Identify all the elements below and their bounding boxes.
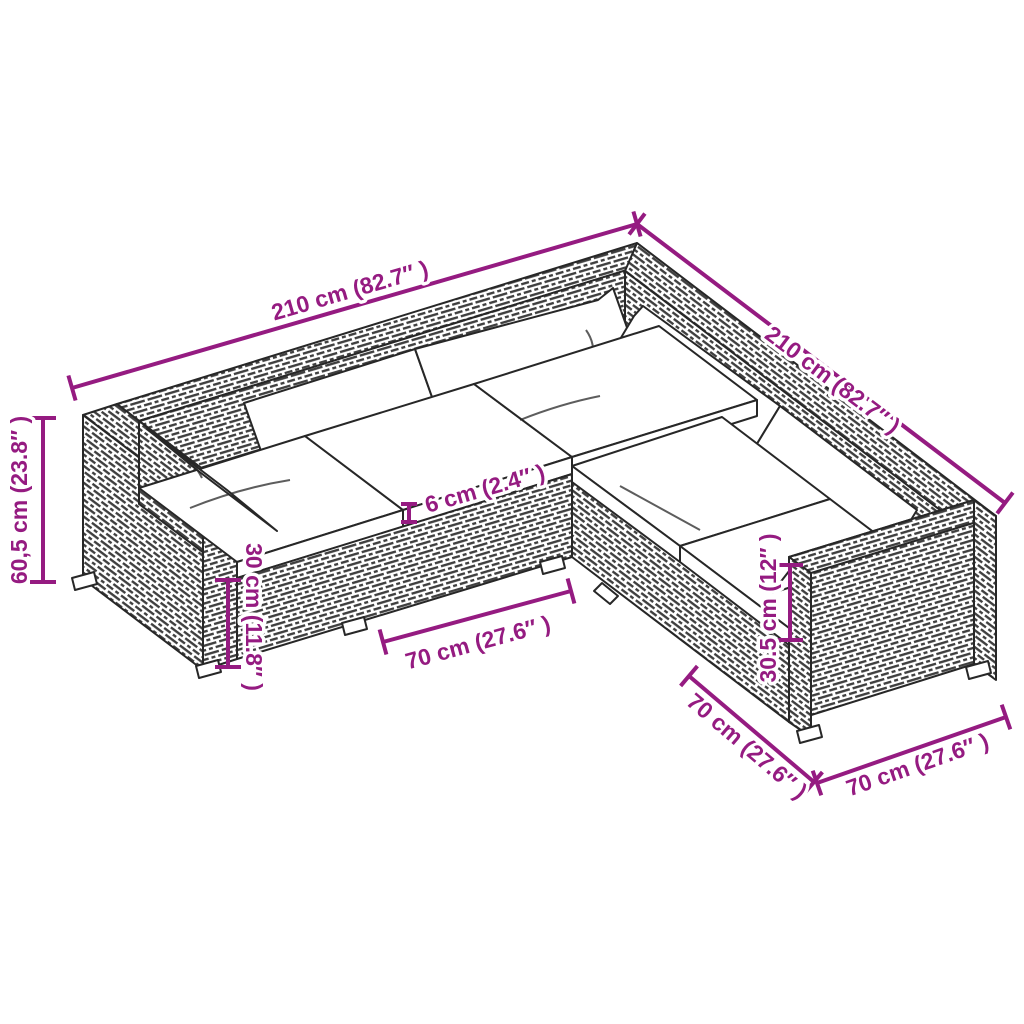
dimension-label: 30 cm (11.8″ ): [241, 543, 267, 691]
armrest-right-front-face: [789, 557, 811, 737]
sofa-illustration: [72, 243, 996, 743]
diagram-canvas: 210 cm (82.7″ ) 210 cm (82.7″ ) 60,5 cm …: [0, 0, 1024, 1024]
dimension-label: 70 cm (27.6″ ): [403, 610, 554, 674]
dim-module-width-70-right: 70 cm (27.6″ ): [813, 705, 1011, 802]
dim-overall-height-60-5: 60,5 cm (23.8″ ): [6, 416, 56, 584]
dimension-label: 60,5 cm (23.8″ ): [6, 416, 32, 584]
armrest-right-outer-edge: [974, 500, 996, 680]
dimension-label: 30.5 cm (12″ ): [755, 533, 781, 682]
product-dimension-diagram: 210 cm (82.7″ ) 210 cm (82.7″ ) 60,5 cm …: [0, 0, 1024, 1024]
dimension-line: [30, 418, 56, 582]
